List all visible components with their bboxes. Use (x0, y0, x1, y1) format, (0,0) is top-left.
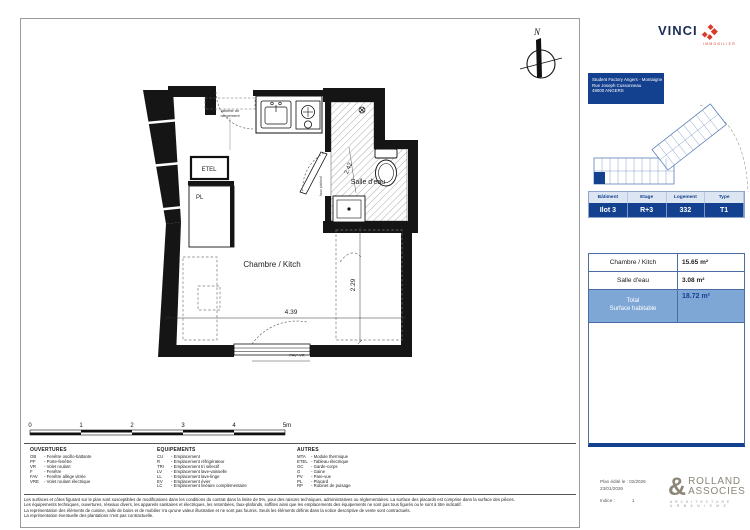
surface-room-value: 3.08 m² (678, 272, 744, 289)
svg-text:3: 3 (181, 423, 185, 429)
indice-label: Indice : (600, 498, 615, 505)
unit-table-header: Logement (667, 192, 706, 203)
svg-text:1: 1 (79, 423, 83, 429)
room-label-salle-deau: Salle d'eau (351, 179, 386, 186)
unit-table-header: Bâtiment (589, 192, 628, 203)
legend-title: AUTRES (297, 447, 427, 453)
window-label: FAV+VR (289, 353, 304, 358)
legend-autres: AUTRES MTA- Module thermique ETEL- Table… (297, 447, 427, 489)
dimension-2-29-label: 2.29 (350, 278, 357, 291)
architect-logo: & ROLLAND ASSOCIES ARCHITECTURE URBANISM… (668, 476, 748, 508)
faux-plafond-label: faux plafond (319, 176, 323, 196)
svg-text:2: 2 (130, 423, 134, 429)
closet-pl: PL (189, 186, 234, 247)
unit-table-header: Type (705, 192, 744, 203)
sink-icon (261, 101, 291, 128)
shower-tray-icon (333, 196, 365, 222)
vinci-wordmark: VINCI (658, 24, 698, 38)
edition-date: 23/01/2026 (600, 486, 672, 493)
surface-row: Salle d'eau 3.08 m² (589, 272, 744, 290)
legend-title: EQUIPEMENTS (157, 447, 292, 453)
vinci-symbol-icon (701, 24, 721, 41)
surface-room-value: 15.65 m² (678, 254, 744, 271)
legend: OUVERTURES OB- Fenêtre oscillo-battante … (24, 443, 576, 495)
svg-text:rangement: rangement (220, 113, 240, 118)
surface-room-label: Chambre / Kitch (589, 254, 678, 271)
etel-box: ETEL (191, 157, 228, 179)
legend-item: LC- Emplacement linéaire complémentaire (157, 484, 292, 489)
architect-sub-2: URBANISME (670, 504, 748, 508)
indice-value: 1 (632, 498, 635, 505)
surface-total-value: 18.72 m² (678, 290, 744, 322)
scale-bar: 0 1 2 3 4 5m (28, 423, 291, 435)
dimension-4-39-label: 4.39 (285, 309, 298, 316)
project-address-box: Student Factory Angers - Montaigne Rue J… (588, 73, 664, 104)
surface-room-label: Salle d'eau (589, 272, 678, 289)
disclaimer-line: La représentation éventuelle des plantat… (24, 513, 574, 518)
svg-text:4: 4 (232, 423, 236, 429)
closet-divider (188, 181, 234, 186)
unit-type: T1 (705, 203, 744, 217)
vinci-logo: VINCI IMMOBILIER (658, 24, 738, 46)
room-label-chambre: Chambre / Kitch (243, 260, 300, 269)
surface-total-row: Total Surface habitable 18.72 m² (589, 290, 744, 323)
unit-number: 332 (667, 203, 706, 217)
surface-table: Chambre / Kitch 15.65 m² Salle d'eau 3.0… (588, 253, 745, 447)
key-plan-unit-marker (594, 172, 605, 184)
architect-name-2: ASSOCIES (688, 487, 746, 497)
surface-row: Chambre / Kitch 15.65 m² (589, 254, 744, 272)
unit-floor: R+3 (628, 203, 667, 217)
unit-table-header: Etage (628, 192, 667, 203)
svg-text:PL: PL (196, 195, 204, 201)
unit-building: Ilot 3 (589, 203, 628, 217)
disclaimer: Les surfaces et côtes figurant sur le pl… (24, 497, 574, 519)
dimension-4-39 (165, 316, 406, 320)
project-city: 49000 ANGERS (592, 88, 664, 94)
north-compass-icon: N (520, 27, 562, 78)
ampersand-glyph: & (668, 476, 686, 498)
legend-title: OUVERTURES (30, 447, 150, 453)
floor-plan-sheet: FAV+VR (0, 0, 750, 530)
key-plan (594, 104, 748, 192)
svg-text:N: N (533, 27, 541, 37)
window-swing-arc (252, 321, 307, 344)
legend-item: RP- Robinet de puisage (297, 484, 427, 489)
vinci-sub-label: IMMOBILIER (676, 42, 736, 46)
surface-total-label: Total Surface habitable (589, 290, 678, 322)
project-name: Student Factory Angers - Montaigne (592, 77, 664, 83)
edition-info: Plan édité le : 02/2026 23/01/2026 Indic… (600, 479, 672, 505)
svg-text:5m: 5m (283, 423, 291, 429)
legend-item: VRE- Volet roulant électrique (30, 480, 150, 485)
legend-equipements: EQUIPEMENTS CU- Emplacement R- Emplaceme… (157, 447, 292, 489)
indice-row: Indice : 1 (600, 498, 672, 505)
svg-text:0: 0 (28, 423, 32, 429)
unit-table: Bâtiment Etage Logement Type Ilot 3 R+3 … (588, 191, 745, 218)
svg-text:ETEL: ETEL (201, 167, 217, 173)
hob-icon (296, 101, 320, 129)
kitchen-counter (256, 96, 322, 133)
dimension-2-29 (358, 226, 362, 344)
legend-ouvertures: OUVERTURES OB- Fenêtre oscillo-battante … (30, 447, 150, 484)
